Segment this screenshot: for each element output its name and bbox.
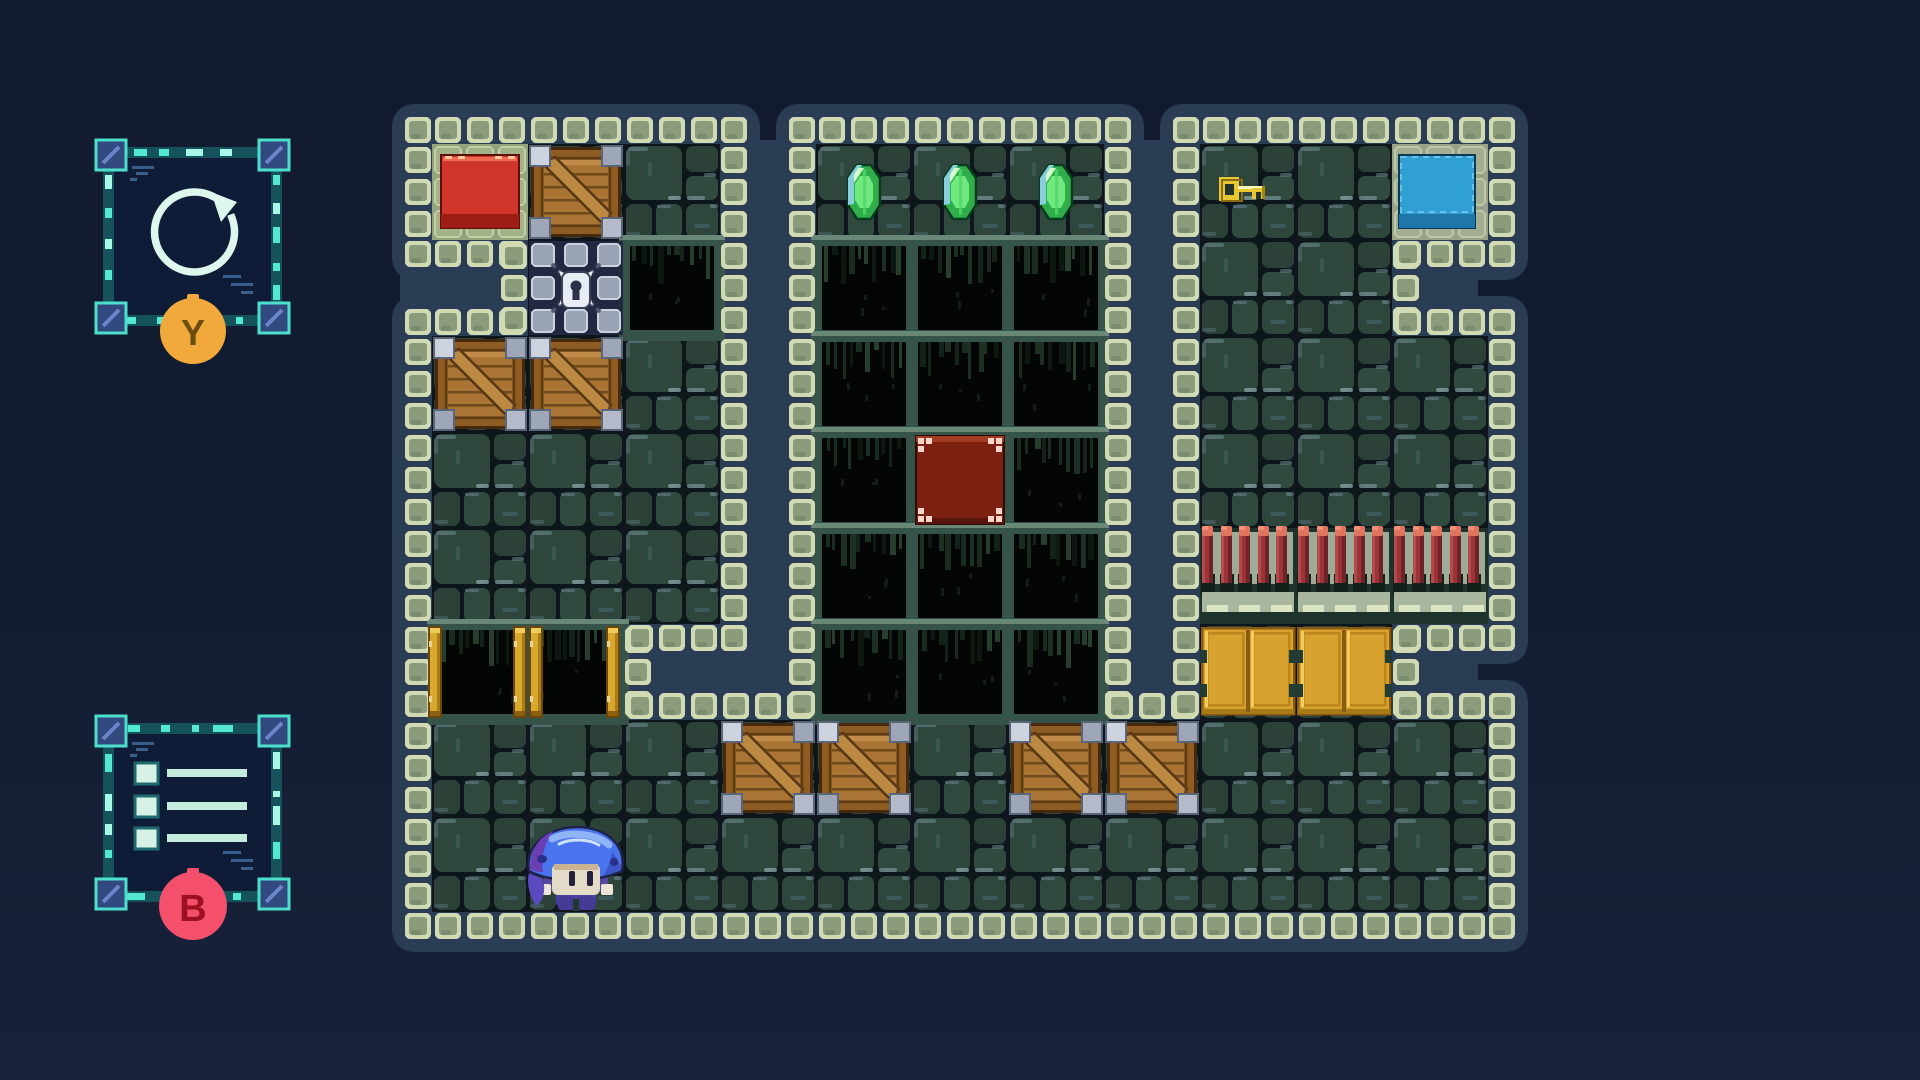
svg-text:B: B — [179, 888, 206, 930]
svg-text:Y: Y — [181, 312, 205, 353]
